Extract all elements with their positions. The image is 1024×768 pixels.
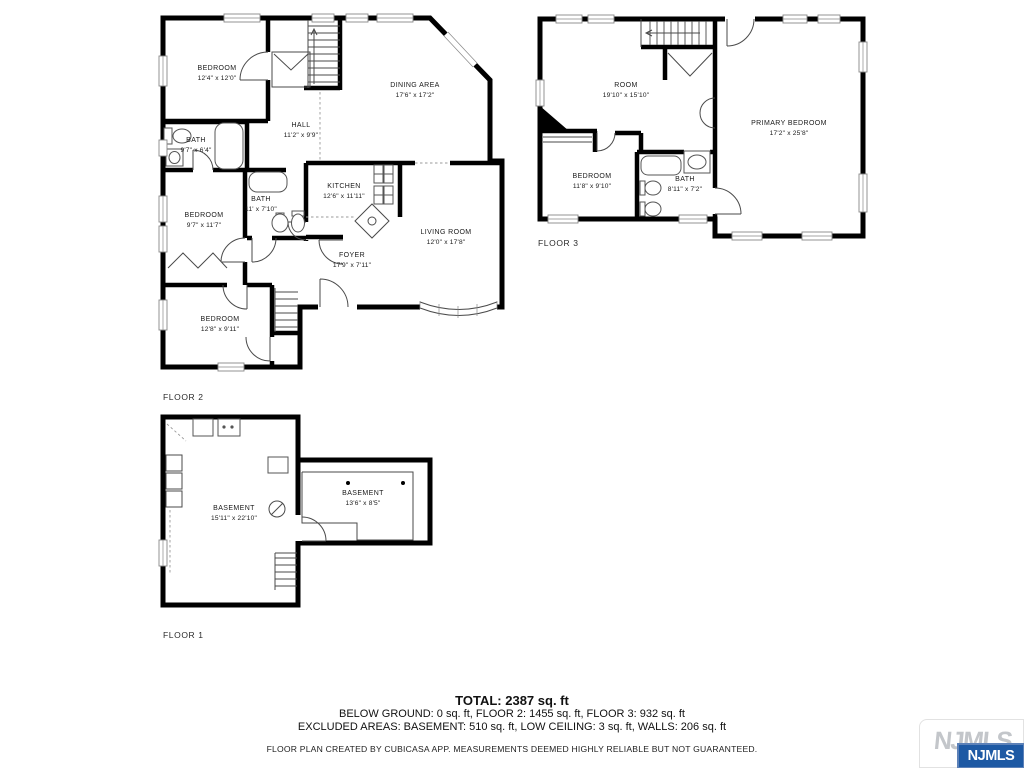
f2-hall-dims: 11'2" x 9'9" (284, 132, 319, 139)
njmls-logo: NJMLS NJMLS (919, 719, 1024, 768)
f1-basement1-label: BASEMENT (213, 505, 255, 512)
f2-bath1-label: BATH (186, 137, 206, 144)
total-area: TOTAL: 2387 sq. ft (0, 694, 1024, 708)
floor2-plan: BEDROOM 12'4" x 12'0" DINING AREA 17'6" … (159, 14, 502, 402)
f2-living-label: LIVING ROOM (420, 229, 471, 236)
f2-bath2-label: BATH (251, 196, 271, 203)
floor3-plan: ROOM 19'10" x 15'10" PRIMARY BEDROOM 17'… (536, 14, 867, 248)
floor-areas-line: BELOW GROUND: 0 sq. ft, FLOOR 2: 1455 sq… (0, 709, 1024, 721)
floor1-plan: BASEMENT 15'11" x 22'10" BASEMENT 13'6" … (159, 417, 430, 640)
f2-bedroom1-label: BEDROOM (198, 65, 237, 72)
f2-bedroom3-dims: 12'8" x 9'11" (201, 326, 240, 333)
area-summary: TOTAL: 2387 sq. ft BELOW GROUND: 0 sq. f… (0, 694, 1024, 733)
f3-bedroom-dims: 11'8" x 9'10" (573, 183, 612, 190)
f3-room-label: ROOM (614, 82, 637, 89)
f2-bedroom2-label: BEDROOM (185, 212, 224, 219)
f3-bedroom-label: BEDROOM (573, 173, 612, 180)
f2-kitchen-dims: 12'6" x 11'11" (323, 193, 365, 200)
f2-hall-label: HALL (291, 122, 310, 129)
f3-bath-label: BATH (675, 176, 695, 183)
f3-bath-dims: 8'11" x 7'2" (668, 186, 703, 193)
floor-plan-canvas: BEDROOM 12'4" x 12'0" DINING AREA 17'6" … (0, 0, 1024, 768)
njmls-badge: NJMLS (957, 743, 1024, 768)
floor1-label: FLOOR 1 (163, 630, 204, 640)
f2-dining-label: DINING AREA (390, 82, 440, 89)
f2-living-dims: 12'0" x 17'8" (427, 239, 466, 246)
f2-bath2-dims: 11' x 7'10" (245, 206, 277, 213)
f2-dining-dims: 17'6" x 17'2" (396, 92, 435, 99)
f3-outer-walls (540, 19, 863, 236)
f2-bedroom1-dims: 12'4" x 12'0" (198, 75, 237, 82)
f1-windows (159, 540, 167, 566)
f2-foyer-dims: 17'9" x 7'11" (333, 262, 372, 269)
excluded-areas-line: EXCLUDED AREAS: BASEMENT: 510 sq. ft, LO… (0, 722, 1024, 734)
f1-basement2-label: BASEMENT (342, 490, 384, 497)
f2-bedroom2-dims: 9'7" x 11'7" (187, 222, 222, 229)
f3-primary-label: PRIMARY BEDROOM (751, 120, 827, 127)
floorplan-page: BEDROOM 12'4" x 12'0" DINING AREA 17'6" … (0, 0, 1024, 768)
f1-basement1-dims: 15'11" x 22'10" (211, 515, 257, 522)
f2-bath1-dims: 9'7" x 6'4" (180, 147, 211, 154)
disclaimer-text: FLOOR PLAN CREATED BY CUBICASA APP. MEAS… (0, 744, 1024, 754)
floor2-label: FLOOR 2 (163, 392, 204, 402)
f2-kitchen-label: KITCHEN (327, 183, 361, 190)
f1-basement2-dims: 13'6" x 8'5" (346, 500, 381, 507)
f3-primary-dims: 17'2" x 25'8" (770, 130, 809, 137)
floor3-label: FLOOR 3 (538, 238, 579, 248)
f2-bedroom3-label: BEDROOM (201, 316, 240, 323)
f2-foyer-label: FOYER (339, 252, 365, 259)
f3-room-dims: 19'10" x 15'10" (603, 92, 650, 99)
